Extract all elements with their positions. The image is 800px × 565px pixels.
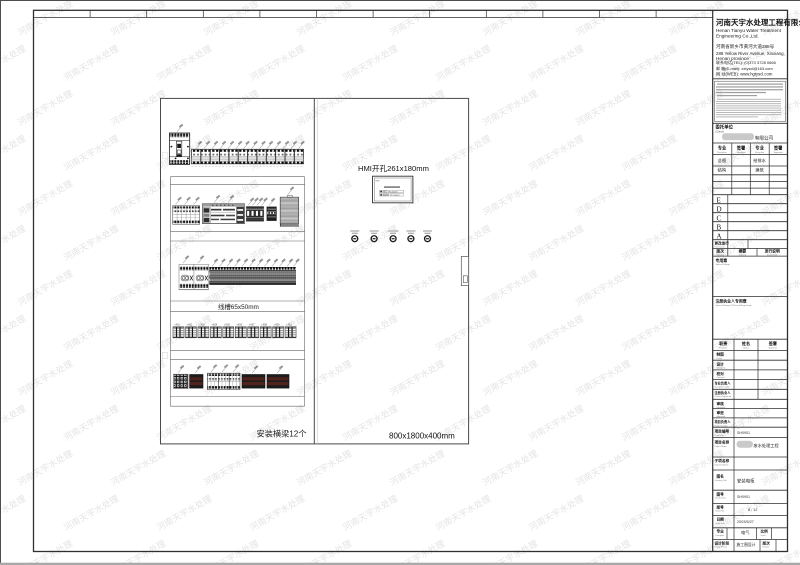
svg-text:子项名称: 子项名称 [715,458,730,463]
svg-text:+X09: +X09 [274,323,280,326]
svg-text:+X08: +X08 [261,323,267,326]
svg-text:制图: 制图 [717,352,725,357]
svg-text:HMI开孔261x180mm: HMI开孔261x180mm [358,164,429,173]
svg-text:Discipline Leader: Discipline Leader [715,387,731,389]
svg-text:First Issue: First Issue [715,246,726,249]
svg-text:专业: 专业 [718,144,727,151]
svg-text:版号: 版号 [717,504,725,509]
svg-text:Job lock: Job lock [739,254,746,256]
svg-text:河南省新乡市黄河大道288号: 河南省新乡市黄河大道288号 [716,43,775,50]
svg-text:专用章: 专用章 [716,258,728,263]
svg-text:Revised: Revised [717,254,724,256]
svg-text:Signature: Signature [774,151,784,154]
svg-text:Project No.: Project No. [715,434,725,437]
svg-text:A: A [717,232,722,240]
svg-text:有限公司: 有限公司 [755,134,774,141]
svg-text:+X03: +X03 [199,323,205,326]
svg-text:Signature: Signature [768,346,778,349]
svg-text:废水处理工程: 废水处理工程 [754,442,780,449]
svg-text:Signature: Signature [736,151,746,154]
svg-text:+X04: +X04 [212,323,218,326]
svg-text:8 : 12: 8 : 12 [748,508,758,512]
svg-text:项目名称: 项目名称 [714,440,730,445]
svg-text:审核: 审核 [717,401,725,406]
svg-text:校对: 校对 [717,371,725,376]
svg-text:注册执业人: 注册执业人 [715,390,732,395]
svg-text:版次: 版次 [716,248,724,253]
svg-text:职责: 职责 [719,340,727,346]
svg-text:安装电柜: 安装电柜 [737,477,755,484]
svg-text:Sheet No.: Sheet No. [716,510,725,513]
svg-text:设计: 设计 [717,361,725,366]
svg-text:Special Stamp Of Person Regist: Special Stamp Of Person Registered [716,304,753,307]
svg-text:800x1800x400mm: 800x1800x400mm [389,432,455,441]
svg-text:姓名: 姓名 [742,340,750,346]
svg-text:2003/5/27: 2003/5/27 [737,520,754,524]
svg-text:Discipline: Discipline [716,535,725,537]
svg-text:Checked: Checked [717,377,725,379]
svg-text:发行说明: 发行说明 [764,248,780,253]
svg-text:Designed: Designed [717,368,725,370]
svg-text:线槽65x50mm: 线槽65x50mm [218,302,259,311]
svg-text:日期: 日期 [717,517,725,522]
svg-text:签署: 签署 [768,340,777,346]
svg-text:HMI: HMI [376,181,380,183]
svg-text:总图: 总图 [718,157,726,164]
svg-text:Special Stamp: Special Stamp [716,263,731,266]
svg-text:Sub-item Name: Sub-item Name [715,463,730,466]
svg-text:更改发行: 更改发行 [714,240,730,245]
svg-text:签署: 签署 [773,144,783,151]
svg-text:Discipline: Discipline [717,152,727,154]
svg-text:邮 箱(E-mail): xxtyscl@163.com: 邮 箱(E-mail): xxtyscl@163.com [716,65,773,71]
svg-text:Drawing Title: Drawing Title [715,479,727,482]
svg-text:Approved: Approved [717,415,726,418]
svg-text:结构: 结构 [718,167,726,174]
svg-text:E: E [717,196,721,204]
svg-text:Project Leader: Project Leader [715,424,728,427]
svg-text:Project Name: Project Name [715,445,728,448]
svg-text:+X10: +X10 [286,323,292,326]
svg-text:签署: 签署 [736,144,746,151]
svg-text:图名: 图名 [717,473,725,478]
svg-text:Henan Tianyu Water Treatment: Henan Tianyu Water Treatment [716,28,782,33]
svg-text:注册执业人专用章: 注册执业人专用章 [716,298,747,303]
svg-text:Reviewed: Reviewed [717,407,726,409]
svg-text:SH0901: SH0901 [737,495,750,499]
svg-text:+X06: +X06 [236,323,242,326]
svg-text:比例: 比例 [761,529,769,534]
svg-text:给排水: 给排水 [753,157,766,164]
svg-text:Person Registered: Person Registered [715,395,732,398]
svg-text:+X01: +X01 [174,323,180,326]
svg-text:图号: 图号 [717,491,725,496]
svg-text:Issued Note: Issued Note [767,253,779,256]
svg-text:版次: 版次 [763,540,771,545]
svg-text:审定: 审定 [717,410,725,415]
svg-text:建筑: 建筑 [755,167,764,174]
svg-text:C: C [717,214,722,222]
svg-text:Engineering Co.,Ltd.: Engineering Co.,Ltd. [716,33,759,38]
svg-text:+X07: +X07 [249,323,255,326]
svg-text:Issue date: Issue date [716,522,726,525]
svg-text:Name: Name [743,347,749,349]
svg-text:施工图设计: 施工图设计 [737,542,756,547]
svg-text:288 Yellow River Avenue, Xinxi: 288 Yellow River Avenue, Xinxiang, [716,51,785,56]
svg-text:电气: 电气 [741,529,750,535]
svg-text:Scale: Scale [761,535,767,537]
svg-text:专业: 专业 [755,144,764,151]
svg-text:专业: 专业 [717,529,725,534]
svg-text:摘要: 摘要 [738,248,747,253]
svg-text:项目编号: 项目编号 [714,429,730,434]
svg-text:B: B [717,223,722,231]
svg-text:联系电话(TEL): (0)373 3728 0666: 联系电话(TEL): (0)373 3728 0666 [716,59,777,65]
svg-text:Discipline: Discipline [755,152,765,154]
svg-text:项目负责人: 项目负责人 [715,419,732,424]
svg-text:Version: Version [763,547,770,549]
svg-text:+X05: +X05 [224,323,230,326]
svg-text:+X02: +X02 [187,323,193,326]
svg-text:Function: Function [719,346,728,349]
svg-text:Design Phase: Design Phase [715,547,728,549]
svg-text:专业负责人: 专业负责人 [715,380,732,385]
svg-text:安装横梁12个: 安装横梁12个 [257,429,307,439]
svg-text:设计阶段: 设计阶段 [715,540,730,545]
svg-text:网 址(WEB): www.hgtyscl.com: 网 址(WEB): www.hgtyscl.com [716,70,773,77]
svg-text:河南天宇水处理工程有限公司: 河南天宇水处理工程有限公司 [716,18,800,27]
svg-text:Drawing No.: Drawing No. [715,498,726,500]
svg-text:D: D [717,205,722,213]
svg-text:(Client): (Client) [716,129,724,133]
svg-text:Drawn: Drawn [717,358,723,360]
svg-text:SH0901: SH0901 [737,431,750,435]
